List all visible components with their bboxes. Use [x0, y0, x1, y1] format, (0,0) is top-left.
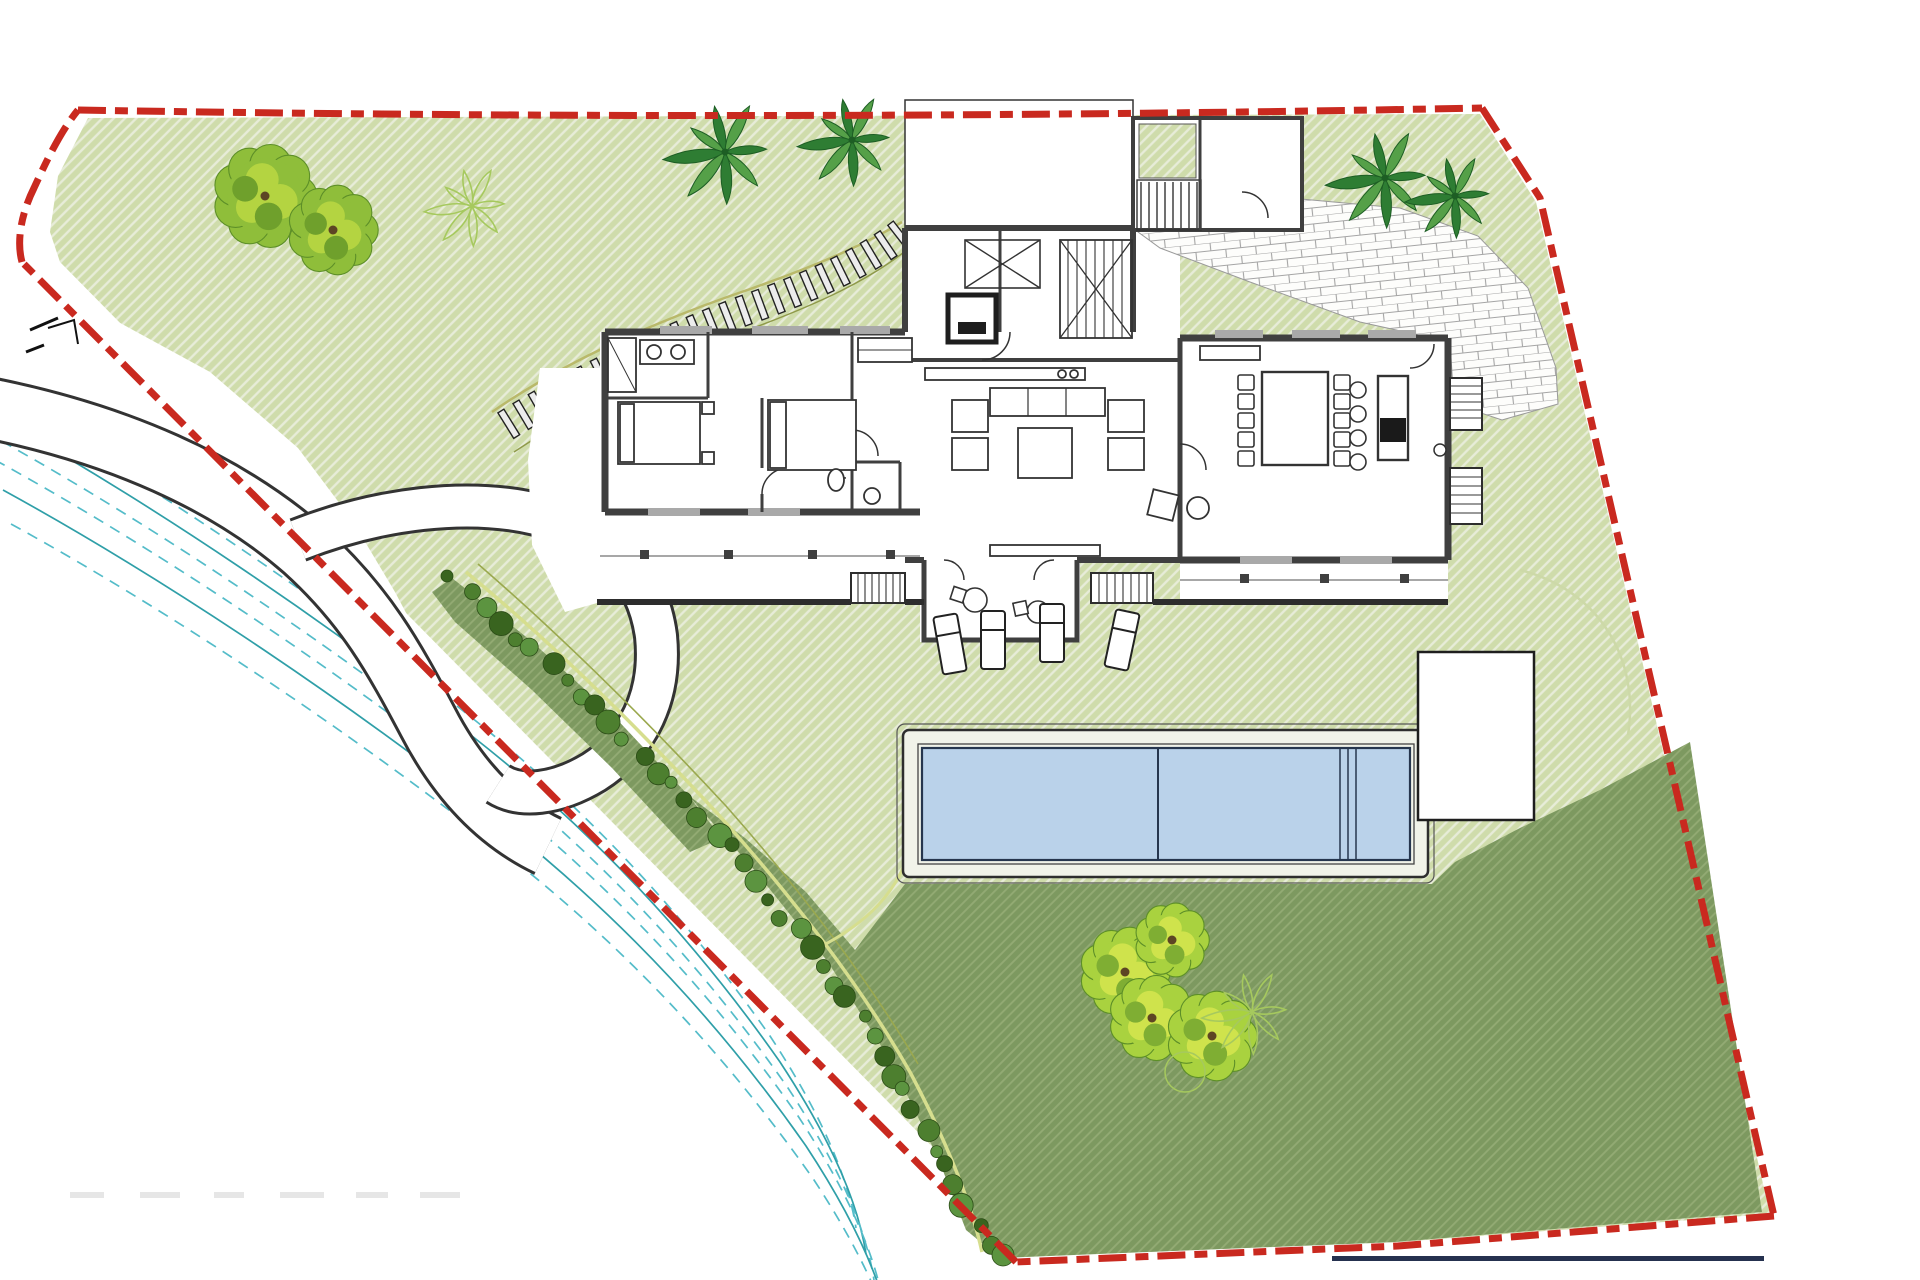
canopy-patch	[305, 213, 327, 235]
stair-east-2	[1450, 468, 1482, 524]
site-plan-canvas	[0, 0, 1920, 1280]
round-tree-bottom	[1136, 903, 1209, 977]
lounger-body	[981, 611, 1005, 669]
sideboard-bowl	[1070, 370, 1078, 378]
palm-center	[1452, 193, 1459, 200]
dining-chair	[1334, 451, 1350, 466]
hedge-bush	[745, 870, 767, 892]
kitchen-stool	[1350, 454, 1366, 470]
canopy-patch	[1144, 1023, 1167, 1046]
hedge-bush	[725, 838, 739, 852]
sill	[1240, 556, 1292, 564]
post	[724, 550, 733, 559]
canopy-patch	[324, 236, 348, 260]
upper-entry-structure	[1133, 118, 1302, 230]
sideboard-bowl	[1058, 370, 1066, 378]
sofa-back	[990, 388, 1105, 416]
boundary-north	[78, 108, 1482, 116]
hedge-bush	[441, 570, 453, 582]
sill	[1368, 330, 1416, 338]
armchair	[952, 400, 988, 432]
trunk-dot	[1121, 968, 1130, 977]
kitchen-sink	[1434, 444, 1446, 456]
hedge-bush	[833, 985, 855, 1007]
hedge-bush	[489, 612, 513, 636]
sink	[647, 345, 661, 359]
hedge-bush	[859, 1010, 871, 1022]
dining-table	[1262, 372, 1328, 465]
post	[1400, 574, 1409, 583]
elevator	[948, 295, 996, 342]
sill	[1340, 556, 1392, 564]
canopy-patch	[1148, 926, 1166, 944]
artifact-dash	[280, 1192, 324, 1198]
dining-chair	[1334, 394, 1350, 409]
post	[1320, 574, 1329, 583]
hedge-bush	[520, 638, 538, 656]
elevator-door	[958, 322, 986, 334]
trunk-dot	[261, 192, 270, 201]
pool-water	[922, 748, 1410, 860]
post	[640, 550, 649, 559]
hedge-bush	[614, 732, 628, 746]
kitchen-stool	[1350, 382, 1366, 398]
side-table	[1147, 489, 1179, 521]
post	[886, 550, 895, 559]
bath-sink	[864, 488, 880, 504]
trunk-dot	[1208, 1032, 1217, 1041]
dining-chair	[1238, 375, 1254, 390]
stair-south-2	[1091, 573, 1153, 603]
artifact-dash	[420, 1192, 460, 1198]
cooktop	[1380, 418, 1406, 442]
nightstand	[702, 402, 714, 414]
kitchen-stool	[1350, 406, 1366, 422]
dining-chair	[1238, 394, 1254, 409]
artifact-dash	[356, 1192, 388, 1198]
artifact-dash	[70, 1192, 104, 1198]
trunk-dot	[329, 226, 338, 235]
site-plan-drawing	[0, 0, 1920, 1280]
hedge-bush	[937, 1156, 953, 1172]
nightstand	[702, 452, 714, 464]
hedge-bush	[901, 1100, 919, 1118]
kitchen-stool	[1350, 430, 1366, 446]
bed-2-pillow	[770, 402, 786, 468]
hedge-bush	[762, 894, 774, 906]
hedge-bush	[687, 808, 707, 828]
sun-lounger	[981, 611, 1005, 669]
hedge-bush	[735, 854, 753, 872]
hedge-bush	[596, 710, 620, 734]
dining-chair	[1238, 432, 1254, 447]
round-tree-top-left	[289, 185, 378, 275]
sill	[660, 326, 712, 334]
hedge-bush	[801, 935, 825, 959]
armchair	[1108, 438, 1144, 470]
canopy-patch	[232, 176, 258, 202]
dining-chair	[1334, 413, 1350, 428]
canopy-patch	[1125, 1001, 1146, 1022]
artifact-dash	[140, 1192, 180, 1198]
sill	[648, 508, 700, 516]
canopy-patch	[1097, 955, 1119, 977]
hedge-bush	[543, 653, 565, 675]
pool-pavilion	[1418, 652, 1534, 820]
hedge-bush	[676, 792, 692, 808]
chair	[1013, 601, 1028, 616]
hedge-bush	[867, 1028, 883, 1044]
bed-1-pillow	[620, 404, 634, 462]
sill	[1292, 330, 1340, 338]
post	[1240, 574, 1249, 583]
round-tree-bottom	[1168, 991, 1257, 1081]
hedge-bush	[636, 747, 654, 765]
sill	[840, 326, 890, 334]
hedge-bush	[875, 1046, 895, 1066]
dining-chair	[1238, 451, 1254, 466]
entry-block-floor	[905, 228, 1133, 332]
entry-courtyard	[905, 100, 1133, 230]
scale-bar-line	[1332, 1256, 1764, 1261]
round-chair	[1187, 497, 1209, 519]
hedge-bush	[816, 960, 830, 974]
stair-south-1	[851, 573, 905, 603]
palm-center	[722, 149, 729, 156]
entry-garden-patch	[1139, 124, 1196, 178]
trunk-dot	[1148, 1014, 1157, 1023]
hedge-bush	[895, 1081, 909, 1095]
chair	[950, 586, 966, 602]
trunk-dot	[1168, 936, 1177, 945]
hedge-bush	[791, 918, 811, 938]
hedge-bush	[931, 1146, 943, 1158]
canopy-patch	[1165, 945, 1185, 965]
tv-bench	[990, 545, 1100, 556]
sill	[1215, 330, 1263, 338]
dining-chair	[1334, 375, 1350, 390]
toilet	[828, 469, 844, 491]
lounger-body	[1040, 604, 1064, 662]
post	[808, 550, 817, 559]
hedge-bush	[465, 584, 481, 600]
palm-center	[1382, 175, 1389, 182]
hedge-bush	[562, 674, 574, 686]
hedge-bush	[771, 910, 787, 926]
dining-chair	[1334, 432, 1350, 447]
armchair	[952, 438, 988, 470]
coffee-table	[1018, 428, 1072, 478]
sill	[748, 508, 800, 516]
sill	[752, 326, 808, 334]
sink	[671, 345, 685, 359]
hedge-bush	[665, 776, 677, 788]
dining-chair	[1238, 413, 1254, 428]
hedge-bush	[918, 1120, 940, 1142]
canopy-patch	[1184, 1019, 1206, 1041]
sun-lounger	[1040, 604, 1064, 662]
artifact-dash	[214, 1192, 244, 1198]
scale-bar	[1332, 1256, 1764, 1261]
console	[1200, 346, 1260, 360]
armchair	[1108, 400, 1144, 432]
palm-center	[849, 137, 856, 144]
canopy-patch	[255, 203, 283, 231]
